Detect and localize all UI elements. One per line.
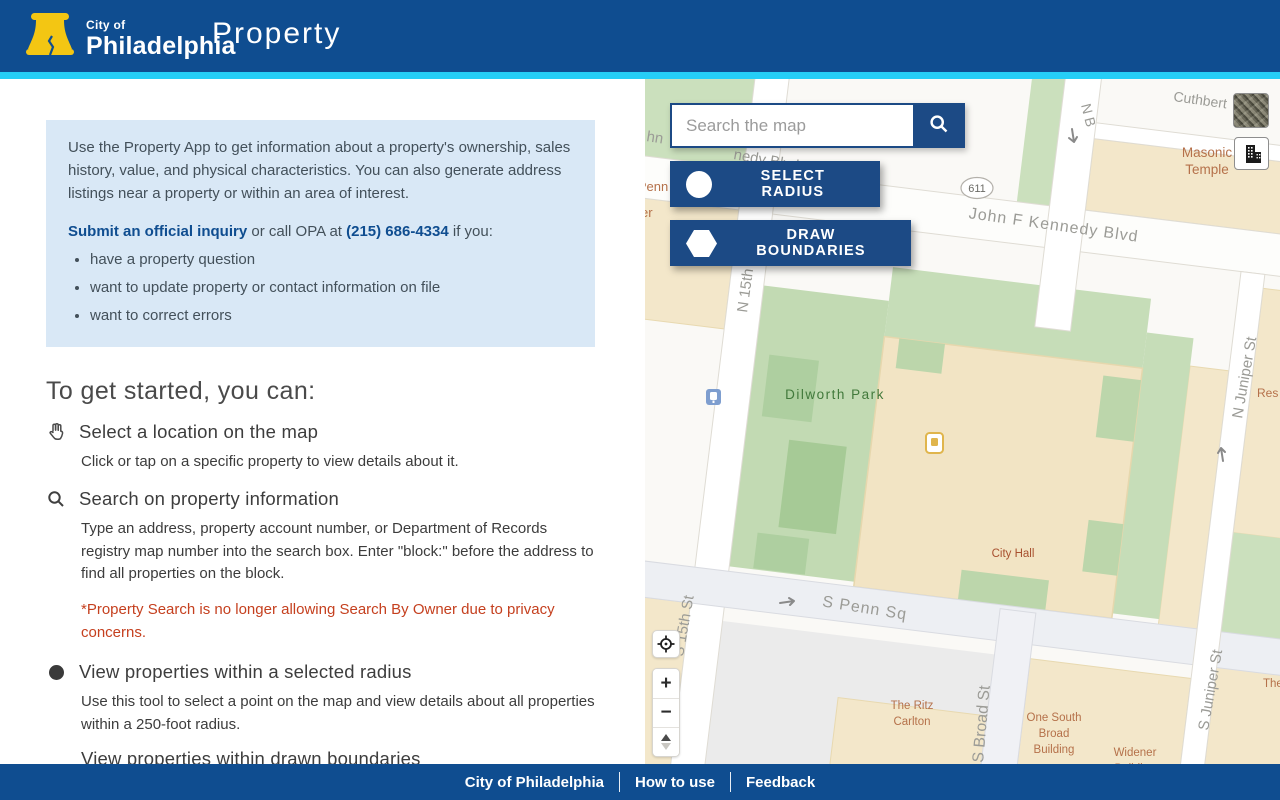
route-shield-611: 611: [961, 178, 993, 199]
page-title: Property: [212, 17, 341, 51]
filled-circle-icon: [46, 662, 66, 682]
intro-bullet: have a property question: [90, 249, 573, 272]
zoom-out-button[interactable]: −: [653, 698, 679, 727]
intro-box: Use the Property App to get information …: [46, 120, 595, 347]
intro-middle-text: or call OPA at: [247, 223, 346, 240]
locate-me-button[interactable]: [652, 630, 680, 658]
item-description: Use this tool to select a point on the m…: [81, 691, 595, 736]
arrow-down-icon: [661, 743, 671, 750]
official-inquiry-link[interactable]: Submit an official inquiry: [68, 223, 247, 240]
app-header: City of Philadelphia Property: [0, 0, 1280, 72]
poi-label-widener: Widener: [1114, 747, 1157, 759]
poi-label-penn-center: Penn: [645, 179, 668, 194]
building-icon: [1241, 143, 1263, 165]
radius-circle-icon: [686, 171, 712, 198]
header-accent-stripe: [0, 72, 1280, 79]
park-label-dilworth: Dilworth Park: [785, 387, 885, 402]
item-description: Type an address, property account number…: [81, 518, 595, 586]
poi-label-one-south: Building: [1034, 744, 1075, 756]
draw-boundaries-label: DRAW BOUNDARIES: [735, 227, 887, 259]
app-footer: City of Philadelphia How to use Feedback: [0, 764, 1280, 800]
zoom-in-button[interactable]: +: [653, 669, 679, 698]
building-layer-button[interactable]: [1234, 137, 1269, 170]
intro-suffix-text: if you:: [449, 223, 493, 240]
item-boundaries: View properties within drawn boundaries: [81, 748, 595, 764]
arrow-up-icon: [661, 734, 671, 741]
get-started-heading: To get started, you can:: [46, 377, 595, 406]
select-radius-label: SELECT RADIUS: [730, 168, 856, 200]
item-title: View properties within a selected radius: [79, 661, 412, 683]
search-icon: [929, 114, 949, 137]
poi-label-ritz: The Ritz: [891, 700, 934, 712]
search-input[interactable]: [670, 103, 913, 148]
poi-label-res: Res: [1257, 386, 1278, 400]
item-search-property: Search on property information: [46, 488, 595, 510]
hand-pointer-icon: [46, 422, 66, 442]
transit-station-icon-yellow: [926, 433, 943, 453]
intro-paragraph: Use the Property App to get information …: [68, 137, 573, 205]
item-select-location: Select a location on the map: [46, 421, 595, 443]
footer-link-city[interactable]: City of Philadelphia: [450, 774, 619, 791]
city-logo[interactable]: City of Philadelphia: [24, 10, 236, 67]
opa-phone-number[interactable]: (215) 686-4334: [346, 223, 449, 240]
intro-bullet-list: have a property question want to update …: [90, 249, 573, 327]
zoom-controls: + −: [652, 668, 680, 757]
intro-bullet: want to correct errors: [90, 305, 573, 328]
basemap-imagery-button[interactable]: [1233, 93, 1269, 128]
poi-label-city-hall: City Hall: [992, 548, 1035, 560]
poi-label-the: The: [1263, 678, 1280, 690]
poi-label-penn-center: ter: [645, 205, 653, 220]
svg-text:611: 611: [968, 183, 986, 195]
info-panel: Use the Property App to get information …: [0, 79, 645, 764]
map-search-bar: [670, 103, 965, 148]
street-label-jfk-partial-left: hn: [645, 128, 664, 147]
item-title: View properties within drawn boundaries: [81, 748, 421, 764]
liberty-bell-icon: [24, 10, 76, 67]
footer-link-how-to-use[interactable]: How to use: [620, 774, 730, 791]
locate-target-icon: [657, 635, 675, 653]
poi-label-one-south: Broad: [1039, 728, 1070, 740]
select-radius-button[interactable]: SELECT RADIUS: [670, 161, 880, 207]
extent-arrows-button[interactable]: [653, 727, 679, 756]
intro-bullet: want to update property or contact infor…: [90, 277, 573, 300]
draw-boundaries-button[interactable]: DRAW BOUNDARIES: [670, 220, 911, 266]
poi-label-one-south: One South: [1027, 712, 1082, 724]
item-title: Select a location on the map: [79, 421, 318, 443]
magnifier-icon: [46, 489, 66, 509]
hexagon-icon: [686, 230, 717, 257]
poi-label-ritz: Carlton: [893, 716, 930, 728]
search-by-owner-note: *Property Search is no longer allowing S…: [81, 598, 581, 645]
poi-label-masonic: Temple: [1185, 162, 1229, 177]
map-container: 611 hn nedy Blvd John F Kennedy Blvd Cut…: [645, 79, 1280, 764]
search-button[interactable]: [913, 103, 965, 148]
item-title: Search on property information: [79, 488, 339, 510]
item-description: Click or tap on a specific property to v…: [81, 451, 595, 474]
footer-link-feedback[interactable]: Feedback: [731, 774, 830, 791]
transit-station-icon-blue: [706, 389, 721, 405]
poi-label-masonic: Masonic: [1182, 145, 1233, 160]
item-radius: View properties within a selected radius: [46, 661, 595, 683]
